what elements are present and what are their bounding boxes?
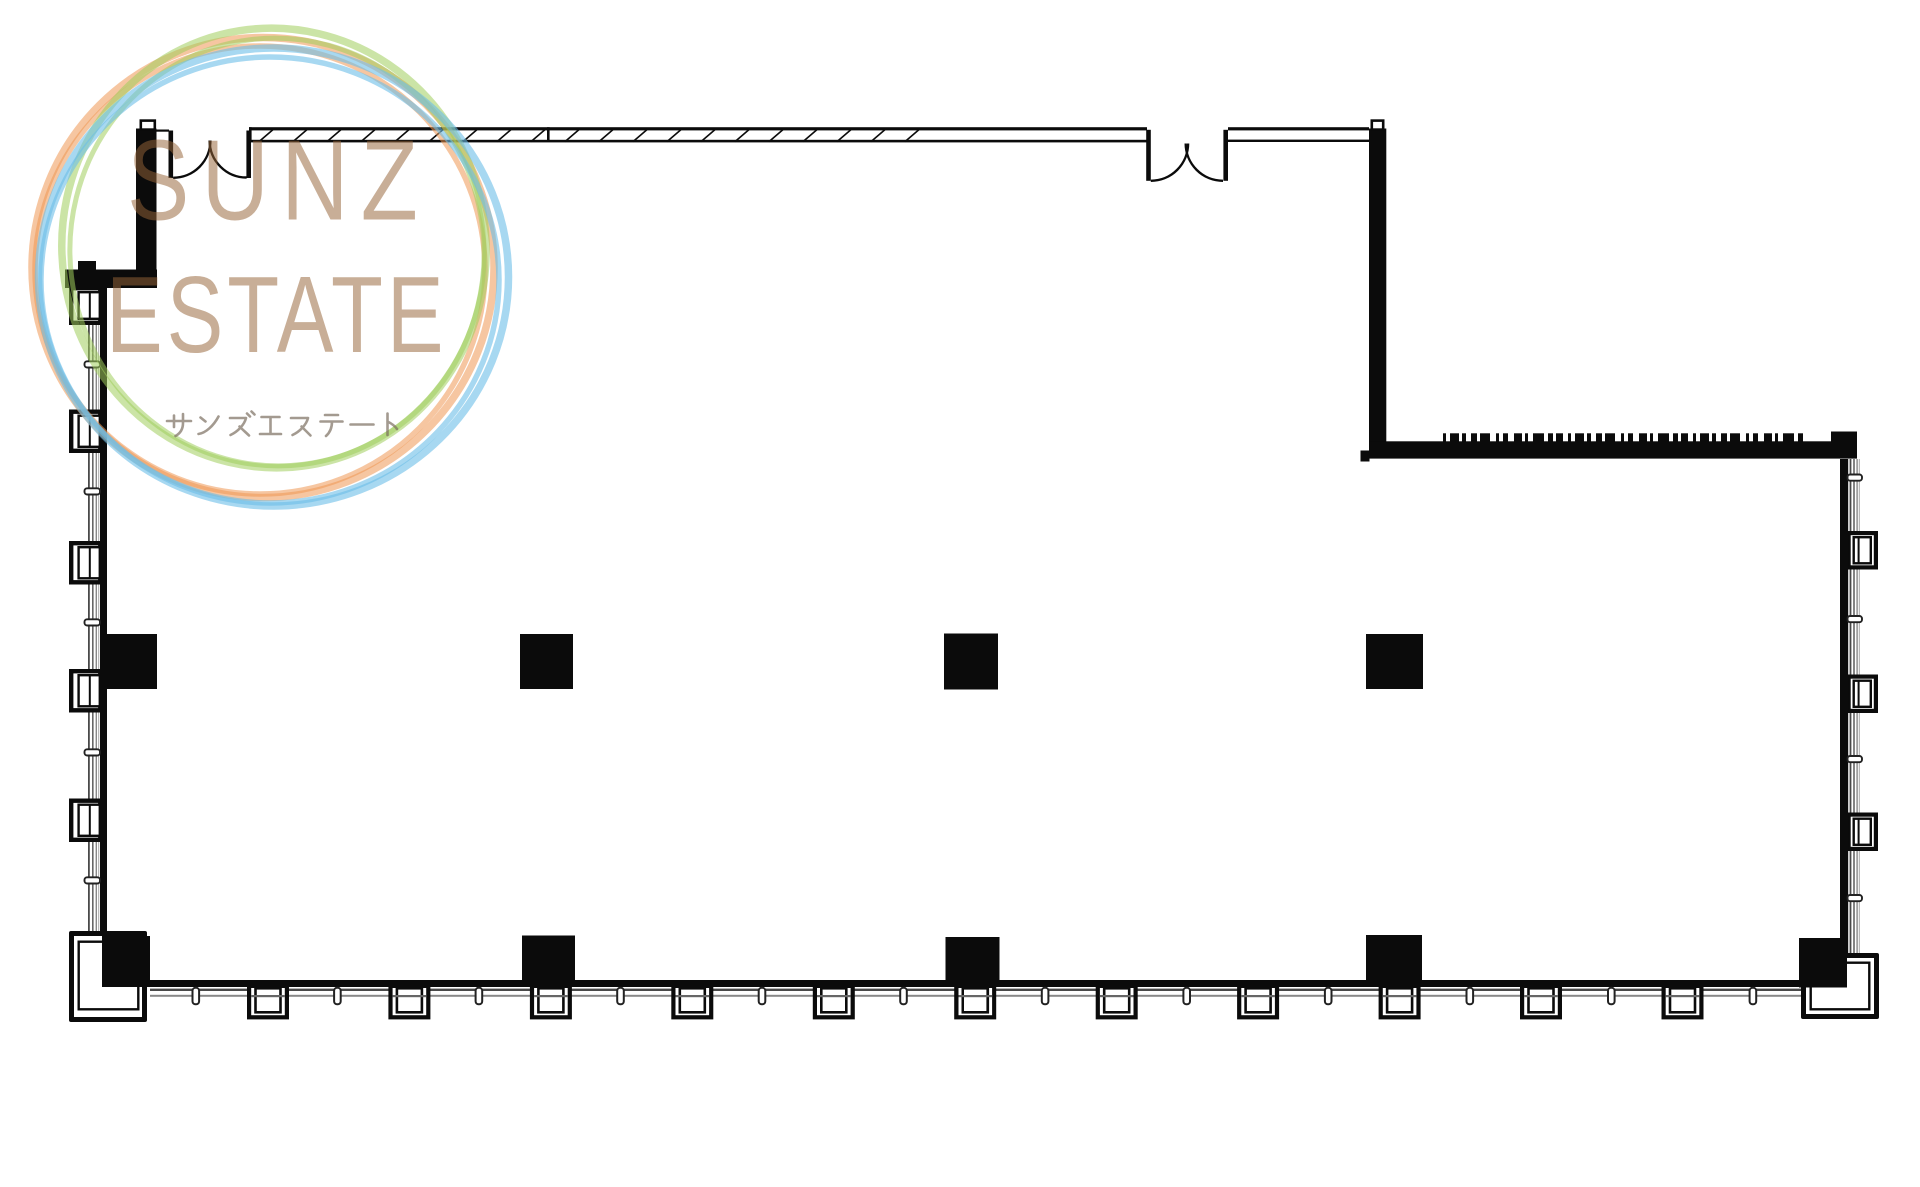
svg-text:SUNZ: SUNZ [127,118,430,245]
svg-text:ESTATE: ESTATE [106,254,447,376]
